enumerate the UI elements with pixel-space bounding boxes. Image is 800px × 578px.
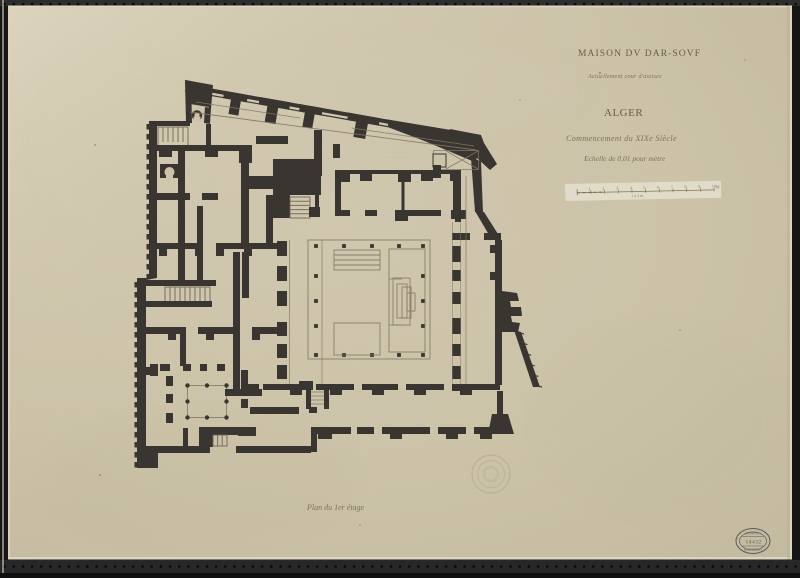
svg-text:14432: 14432 <box>746 540 762 546</box>
svg-text:ALGER: ALGER <box>604 107 643 119</box>
svg-text:ARCHIVES: ARCHIVES <box>745 533 759 536</box>
svg-text:Plan du 1er étage: Plan du 1er étage <box>306 503 365 512</box>
svg-text:3: 3 <box>616 185 618 190</box>
svg-text:MONUMENTS: MONUMENTS <box>744 549 762 552</box>
svg-text:Actuellement cour d'assises: Actuellement cour d'assises <box>587 73 662 80</box>
svg-text:M: M <box>716 184 720 189</box>
svg-text:Echelle de 0,01 pour mètre: Echelle de 0,01 pour mètre <box>583 154 666 163</box>
svg-text:Commencement du XIXе Siècle: Commencement du XIXе Siècle <box>566 134 677 143</box>
svg-text:1: 1 <box>589 186 591 191</box>
svg-text:5: 5 <box>643 185 645 190</box>
svg-text:6: 6 <box>657 185 659 190</box>
svg-text:9: 9 <box>698 184 700 189</box>
svg-text:2: 2 <box>602 186 604 191</box>
svg-text:4: 4 <box>630 185 632 190</box>
svg-text:MAISON DV DAR-SOVF: MAISON DV DAR-SOVF <box>578 49 701 59</box>
svg-text:8: 8 <box>684 184 686 189</box>
svg-text:1 à 2 m.: 1 à 2 m. <box>631 193 644 198</box>
svg-text:7: 7 <box>671 184 673 189</box>
